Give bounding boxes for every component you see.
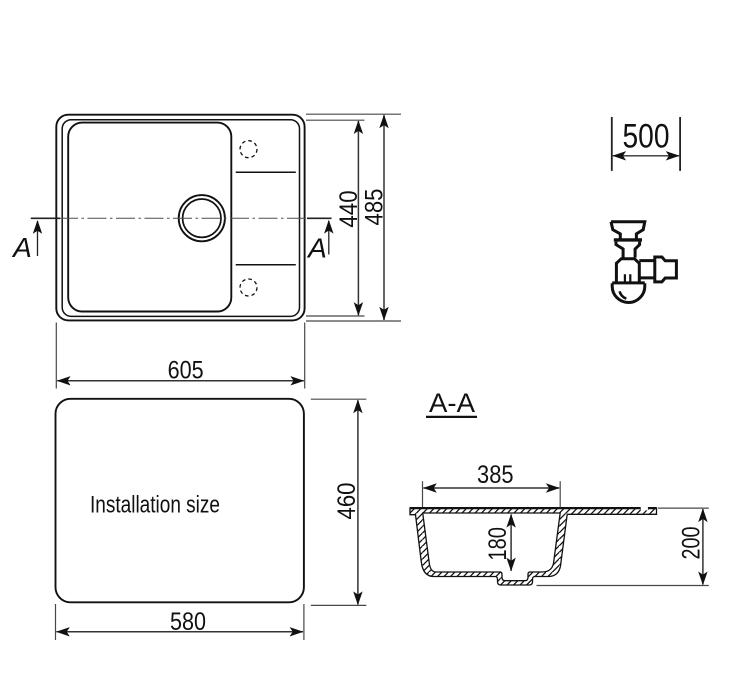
- svg-text:605: 605: [168, 357, 204, 385]
- svg-text:485: 485: [361, 189, 389, 226]
- svg-text:180: 180: [484, 527, 512, 560]
- svg-text:A-A: A-A: [429, 388, 475, 418]
- svg-text:Installation size: Installation size: [90, 491, 220, 518]
- svg-text:500: 500: [623, 117, 670, 155]
- svg-text:460: 460: [333, 483, 361, 520]
- svg-text:385: 385: [477, 461, 514, 489]
- svg-text:440: 440: [335, 190, 363, 227]
- svg-text:A: A: [306, 233, 327, 264]
- svg-text:200: 200: [678, 527, 706, 560]
- svg-text:A: A: [11, 232, 32, 263]
- svg-text:580: 580: [170, 608, 206, 636]
